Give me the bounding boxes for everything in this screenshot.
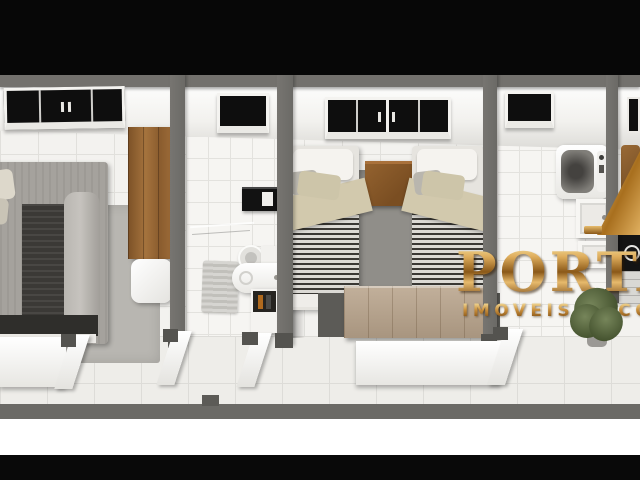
washer-drum (561, 150, 594, 193)
window-handle-icon (61, 102, 64, 112)
north-wall-cap (0, 74, 640, 87)
watermark-emblem-base (584, 226, 602, 234)
laundry-basket (131, 259, 172, 303)
south-wall-cut-twin (356, 341, 501, 385)
window-mullion (91, 90, 94, 122)
laundry-window (505, 91, 554, 128)
bathroom-window (217, 93, 269, 133)
pillow (0, 197, 9, 225)
door-frame-cap (493, 327, 508, 340)
twin-bedroom-window (325, 97, 451, 139)
door-frame-cap (61, 334, 76, 347)
cabinet-shelf (253, 291, 276, 312)
window-handle-icon (378, 112, 381, 122)
letterbox-bottom (0, 455, 640, 480)
window-mullion (418, 100, 420, 132)
washing-machine (556, 145, 609, 199)
window-handle-icon (68, 102, 71, 112)
bed-footboard (0, 315, 98, 336)
window-mullion (386, 100, 389, 132)
south-perimeter-wall (0, 404, 640, 419)
kitchen-window-sliver (627, 97, 640, 133)
wall-bathroom-twin (277, 74, 293, 346)
door-frame-cap (242, 332, 258, 345)
floor-plan-render: PORTA IMOVEIS & CO (0, 0, 640, 480)
wardrobe (128, 127, 172, 259)
bathroom-mirror (242, 187, 279, 211)
bedroom-main-window (4, 86, 126, 130)
bathroom-shelf (262, 192, 273, 206)
letterbox-top (0, 0, 640, 75)
window-handle-icon (392, 112, 395, 122)
potted-plant (570, 286, 622, 348)
window-mullion (39, 90, 42, 122)
window-mullion (356, 100, 358, 132)
wall-bedroom-bathroom (170, 74, 185, 346)
wall-endcap (275, 333, 293, 348)
washer-control-panel (597, 151, 606, 192)
sink-bowl (239, 271, 253, 285)
washer-display (599, 165, 604, 173)
toiletry-cabinet (251, 289, 278, 333)
outside-white-band (0, 419, 640, 455)
pillow (0, 168, 16, 201)
bottle (266, 295, 271, 309)
bottle (258, 295, 263, 309)
bath-mat (201, 260, 239, 313)
wall-stub (202, 395, 219, 406)
double-bed (0, 162, 108, 344)
door-frame-cap (163, 329, 178, 342)
washer-knob (599, 155, 604, 160)
